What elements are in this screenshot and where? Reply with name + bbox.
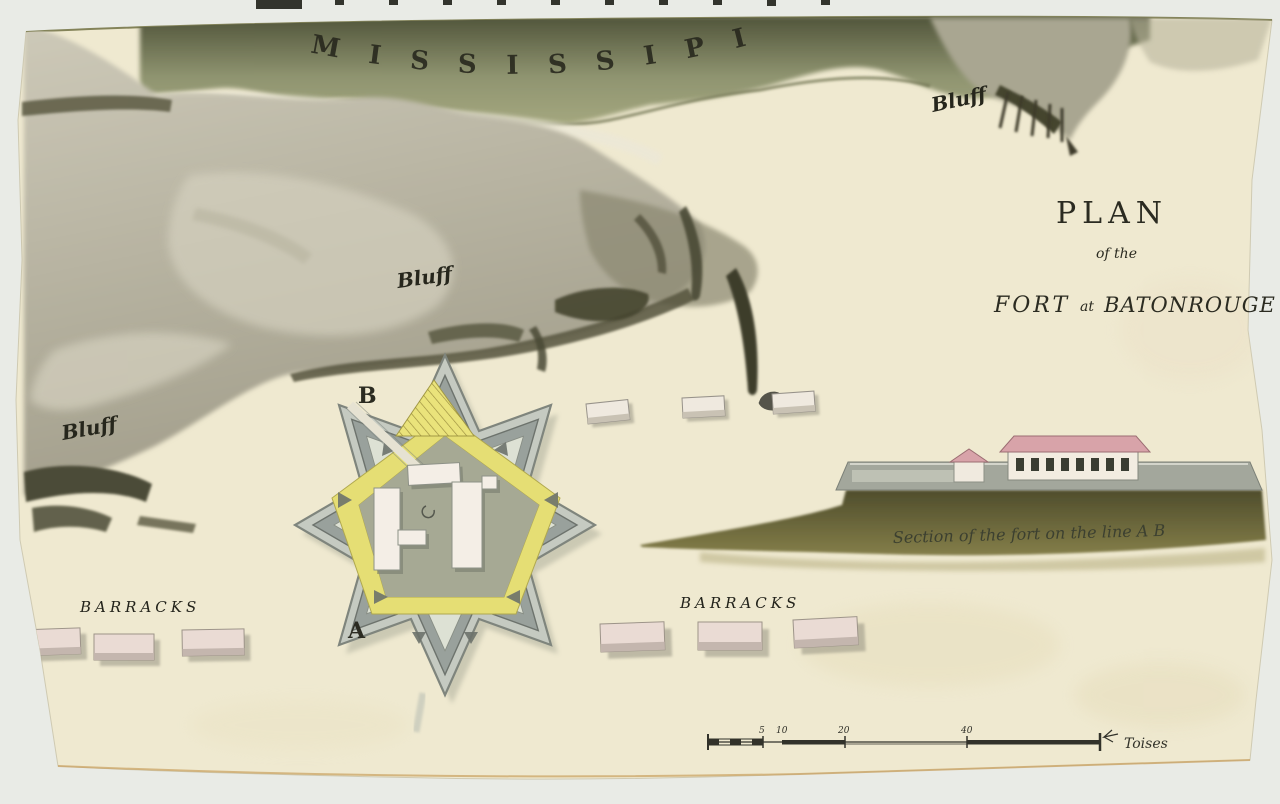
fort-point-a-label: A bbox=[347, 618, 366, 644]
title-fort-word: FORT bbox=[993, 293, 1070, 318]
outbuilding bbox=[682, 396, 729, 422]
fort-building bbox=[398, 530, 426, 545]
barracks-building bbox=[698, 622, 769, 657]
fort-building bbox=[374, 488, 400, 570]
title-sub: of the bbox=[1096, 246, 1137, 262]
barracks-building bbox=[182, 629, 251, 662]
barracks-building bbox=[600, 622, 672, 659]
title-main: PLAN bbox=[1056, 196, 1168, 231]
section-building bbox=[1000, 436, 1150, 480]
fort-building bbox=[482, 476, 497, 489]
title-place: BATONROUGE bbox=[1103, 293, 1276, 317]
outbuilding bbox=[586, 399, 634, 428]
section-building-roof bbox=[1000, 436, 1150, 452]
barracks-building bbox=[793, 616, 866, 655]
scale-tick-label: 20 bbox=[837, 726, 850, 736]
map-canvas: MISSISSIPI Bluff Bluff Bluff PLAN of the… bbox=[0, 0, 1280, 804]
scale-tick-label: 10 bbox=[776, 726, 788, 736]
barracks-right-group bbox=[600, 616, 866, 659]
title-connector: at bbox=[1080, 299, 1094, 315]
fort-building bbox=[452, 482, 482, 568]
barracks-right-label: BARRACKS bbox=[679, 594, 800, 612]
scale-tick-label: 5 bbox=[759, 726, 765, 736]
map-image: MISSISSIPI Bluff Bluff Bluff PLAN of the… bbox=[0, 0, 1280, 804]
fort-point-b-label: B bbox=[358, 383, 377, 409]
barracks-building bbox=[94, 634, 160, 666]
barracks-left-label: BARRACKS bbox=[79, 598, 200, 616]
scale-unit-label: Toises bbox=[1124, 736, 1168, 752]
scale-tick-label: 40 bbox=[960, 726, 973, 736]
